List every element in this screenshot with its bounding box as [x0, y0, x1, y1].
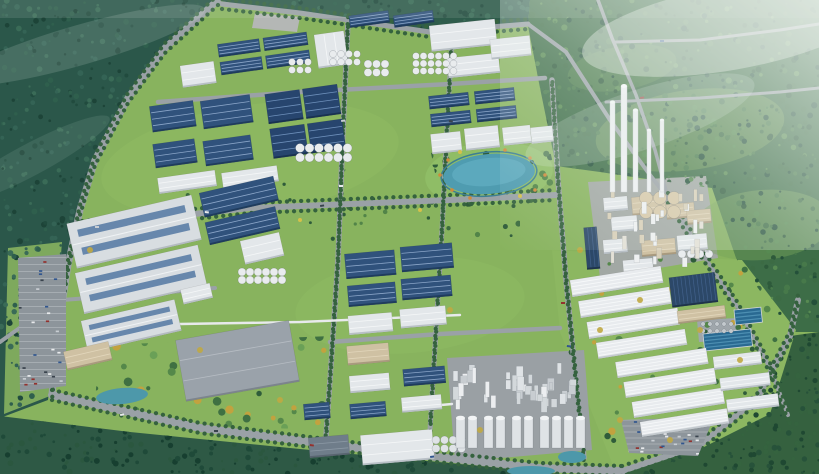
chemical-silos — [456, 416, 585, 448]
industrial-park-aerial-view — [0, 0, 819, 474]
west-parking-lot — [18, 254, 66, 392]
treatment-basin-1 — [734, 307, 762, 325]
aerial-rendering-canvas — [0, 0, 819, 474]
